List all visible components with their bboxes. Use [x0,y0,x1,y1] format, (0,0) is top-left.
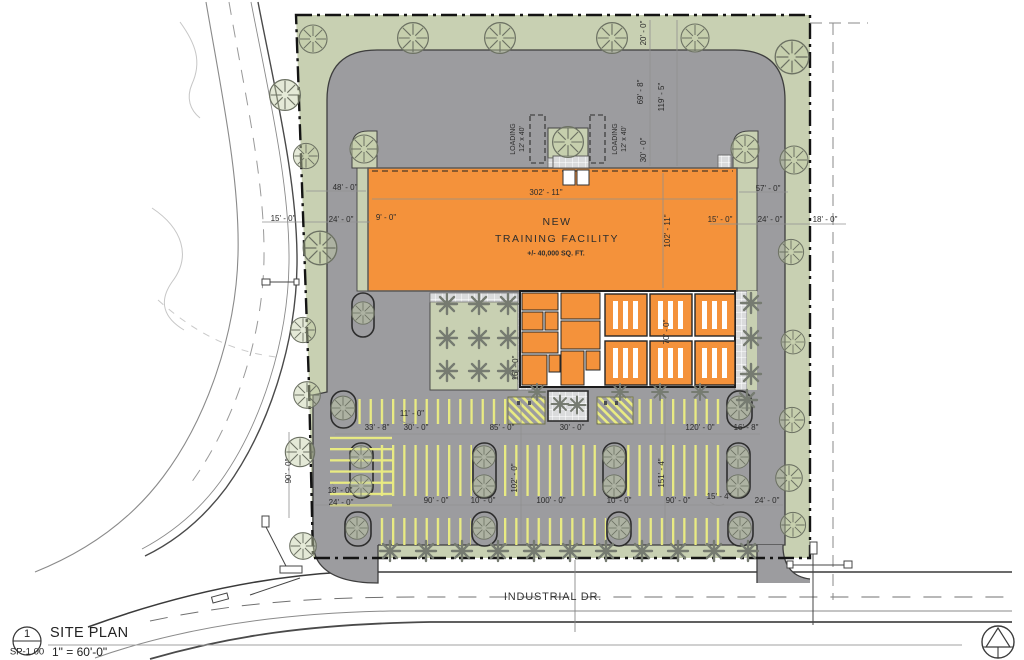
dim-label: 30' - 0" [560,424,585,432]
dim-label: 90' - 0" [424,497,449,505]
dim-label: 30' - 0" [640,138,648,163]
building-area-label: +/- 40,000 SQ. FT. [527,251,584,258]
dim-label: 16' - 8" [734,424,759,432]
dim-label: 18' - 0" [328,487,353,495]
detail-number: 1 [24,628,30,640]
dim-label: 20' - 0" [640,21,648,46]
sheet-title: SITE PLAN [50,625,129,641]
dim-label: 90' - 0" [666,497,691,505]
sheet-scale: 1" = 60'-0" [52,645,107,659]
dim-label: 102' - 0" [511,463,519,492]
dim-label: 119' - 5" [658,83,666,112]
industrial-dr-road [88,560,1012,659]
dim-label: 30' - 0" [404,424,429,432]
road-name-label: INDUSTRIAL DR. [504,591,602,603]
ada-stall [508,397,545,424]
dim-label: 16' - 0" [512,356,520,381]
building-wing [520,291,735,387]
dim-label: 10' - 0" [607,497,632,505]
building-name-line1: NEW [543,216,572,228]
title-block-graphics [13,626,1014,658]
dim-label: 90' - 0" [285,459,293,484]
dim-label: 15' - 4" [707,493,732,501]
dim-label: 15' - 0" [271,215,296,223]
building-depth-dim: 102' - 11" [664,214,672,247]
dim-label: 10' - 0" [471,497,496,505]
dim-label: 85' - 0" [490,424,515,432]
site-plan-sheet: 20' - 0" 69' - 8" 119' - 5" 30' - 0" 48'… [0,0,1024,660]
north-arrow-icon [982,626,1014,658]
dim-label: 9' - 0" [376,214,396,222]
dim-label: 15' - 0" [708,216,733,224]
sheet-number: SP-1.00 [10,647,44,658]
loading-label-left: LOADING 12' x 40' [509,123,527,155]
building-width-dim: 302' - 11" [529,189,562,197]
dim-label: 24' - 0" [755,497,780,505]
site-plan-drawing [0,0,1024,660]
dim-label: 120' - 0" [685,424,714,432]
building-name-line2: TRAINING FACILITY [495,233,619,245]
entry-canopy [553,156,589,168]
dim-label: 24' - 0" [758,216,783,224]
loading-label-right: LOADING 12' x 40' [611,123,629,155]
dim-label: 24' - 0" [329,216,354,224]
dim-label: 33' - 8" [365,424,390,432]
dim-label: 151' - 4" [658,458,666,487]
dim-label: 69' - 8" [637,80,645,105]
dim-label: 100' - 0" [536,497,565,505]
dim-label: 70' - 0" [663,320,671,345]
dim-label: 57' - 0" [756,185,781,193]
parking-stripes [330,397,727,545]
dim-label: 24' - 0" [329,499,354,507]
dim-label: 18' - 0" [813,216,838,224]
left-road [35,2,297,572]
dim-label: 11' - 0" [400,410,424,418]
dim-label: 48' - 0" [333,184,358,192]
